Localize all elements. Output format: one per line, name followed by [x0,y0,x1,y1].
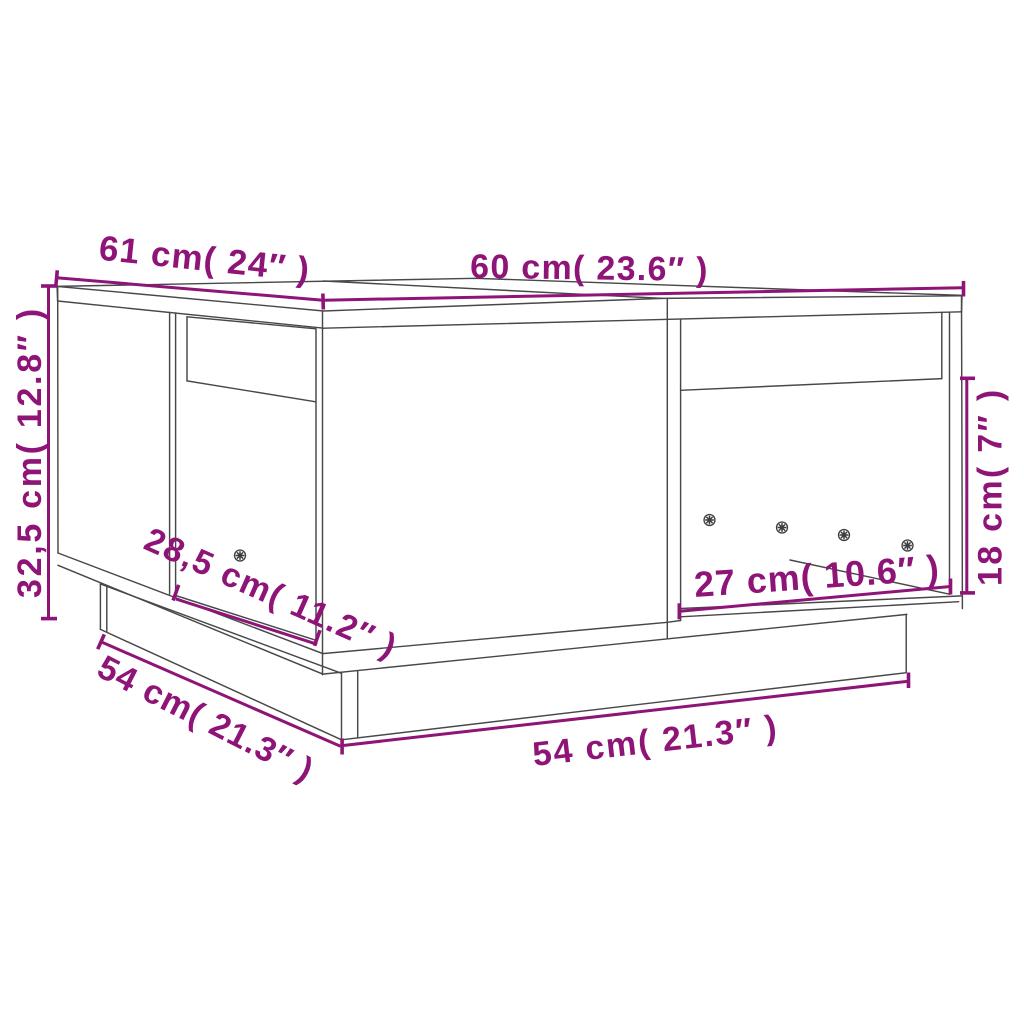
svg-text:18 cm( 7″ ): 18 cm( 7″ ) [972,388,1010,586]
svg-text:60 cm( 23.6″ ): 60 cm( 23.6″ ) [470,248,709,289]
svg-text:32,5 cm( 12.8″ ): 32,5 cm( 12.8″ ) [11,306,49,598]
